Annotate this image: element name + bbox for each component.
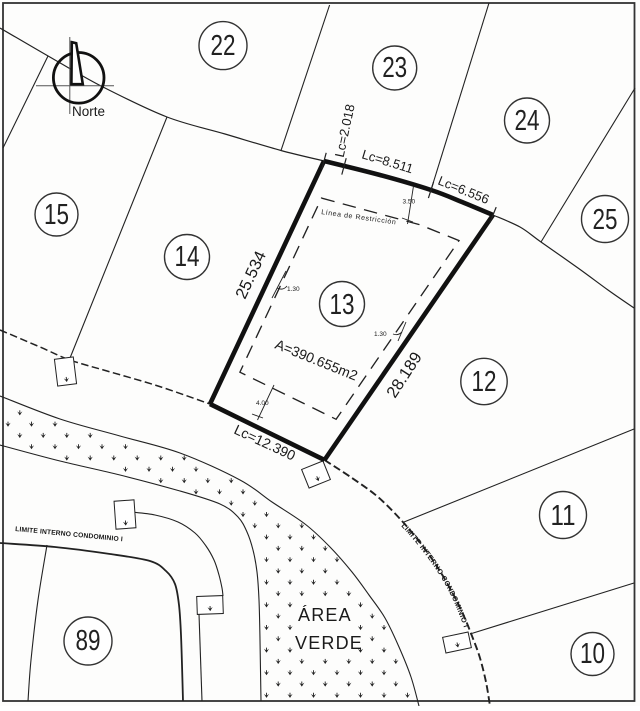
svg-text:25: 25	[593, 204, 618, 236]
svg-text:10: 10	[580, 638, 605, 670]
svg-text:13: 13	[330, 289, 355, 321]
svg-text:1.30: 1.30	[374, 331, 387, 338]
svg-text:1.30: 1.30	[287, 286, 300, 293]
svg-text:ÁREA: ÁREA	[298, 605, 352, 625]
svg-text:11: 11	[551, 500, 576, 532]
svg-text:3.50: 3.50	[403, 199, 416, 206]
svg-text:Norte: Norte	[72, 104, 105, 119]
svg-text:24: 24	[515, 105, 540, 137]
svg-text:12: 12	[472, 366, 497, 398]
svg-text:22: 22	[211, 30, 236, 62]
svg-text:15: 15	[44, 199, 69, 231]
svg-text:4.00: 4.00	[256, 400, 269, 407]
svg-text:VERDE: VERDE	[295, 633, 363, 653]
svg-text:89: 89	[76, 625, 101, 657]
svg-text:14: 14	[175, 241, 200, 273]
svg-text:23: 23	[382, 52, 407, 84]
